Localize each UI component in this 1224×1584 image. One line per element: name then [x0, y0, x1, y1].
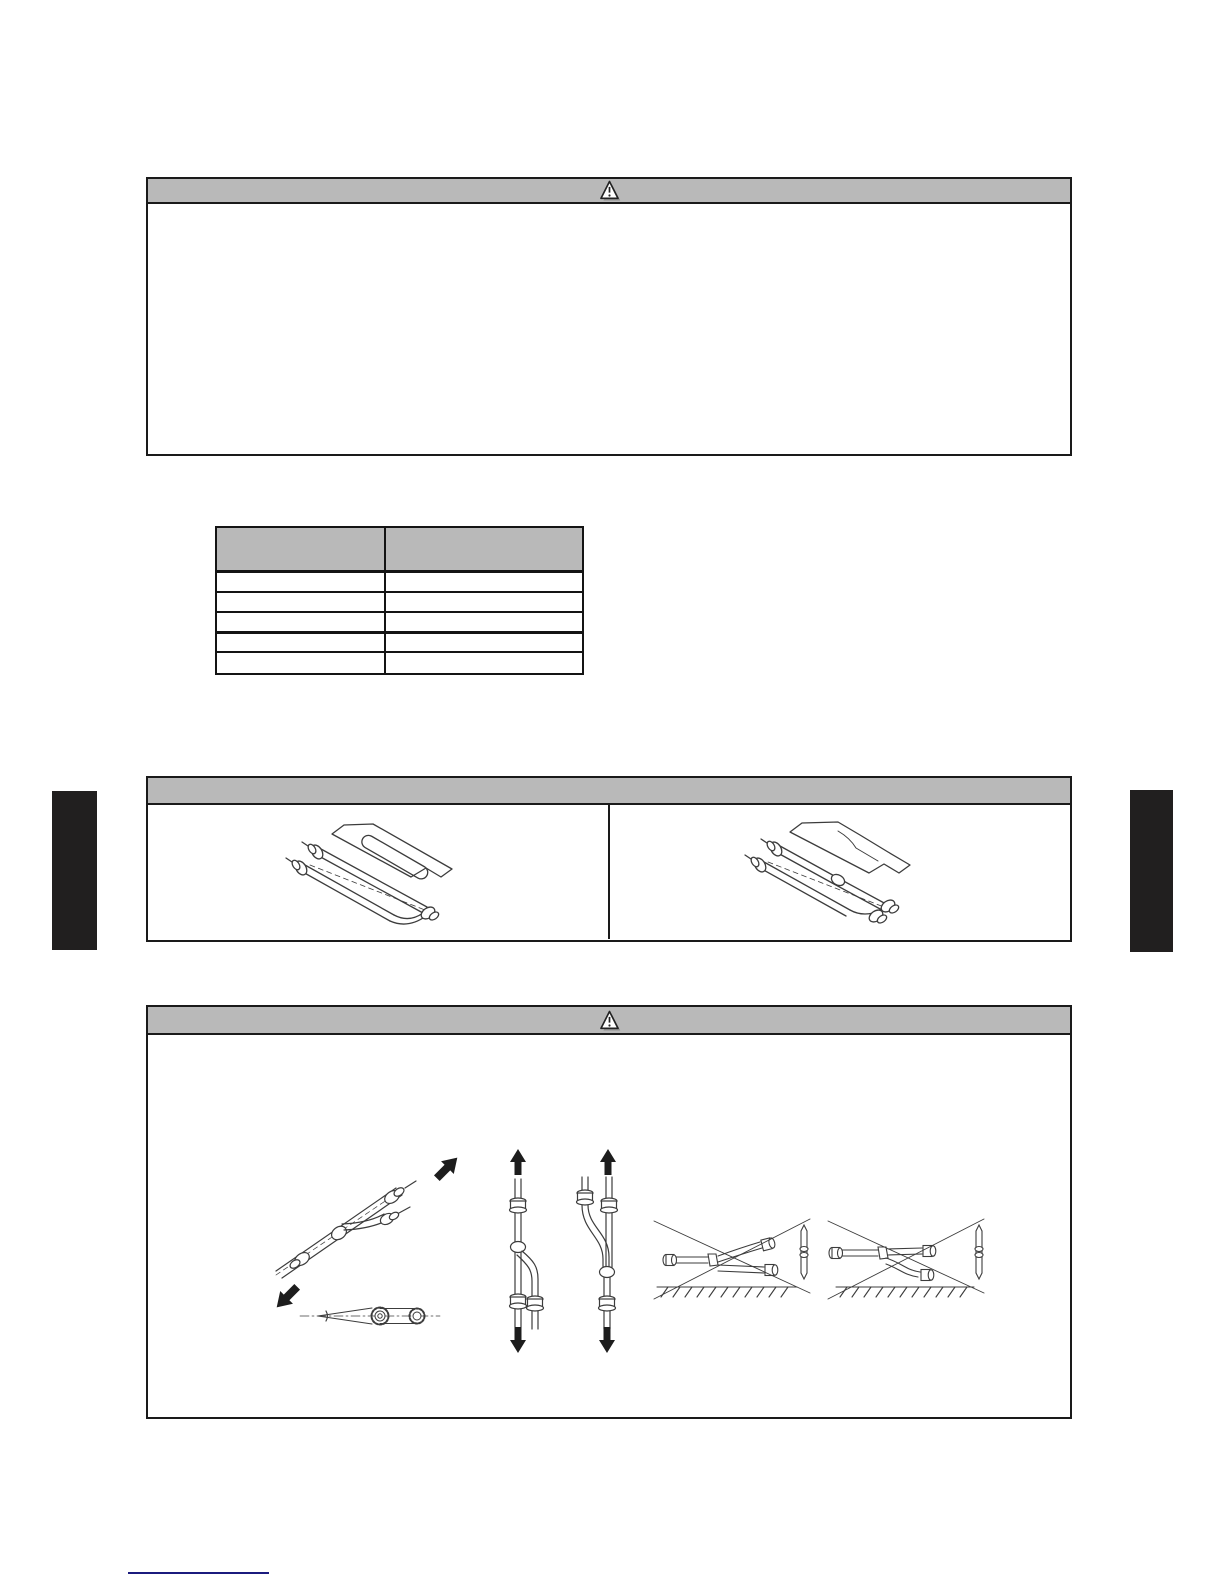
ground-hatching — [836, 1287, 974, 1297]
flare-nut-icon — [510, 1294, 527, 1309]
table-cell — [217, 613, 386, 631]
branch-pipe-cell-right — [610, 805, 1070, 939]
table-row — [217, 573, 582, 593]
arrow-up-icon — [600, 1149, 616, 1175]
vertical-reference-pipe-icon — [975, 1225, 983, 1279]
horizontal-installation-prohibited-figure-2 — [824, 1213, 989, 1308]
warning-box-header — [148, 179, 1070, 204]
table-row — [217, 613, 582, 633]
angle-tolerance-end-view — [300, 1308, 440, 1325]
caution-box-body — [148, 1035, 1070, 1417]
table-cell — [386, 573, 582, 591]
table-cell — [217, 653, 386, 673]
table-cell — [217, 573, 386, 591]
flare-nut-icon — [663, 1255, 677, 1266]
footer-link-underline — [128, 1572, 269, 1574]
flare-nut-icon — [765, 1265, 778, 1276]
flare-nut-icon — [302, 842, 325, 861]
manual-page — [0, 0, 1224, 1584]
flare-nut-icon — [577, 1190, 594, 1205]
flare-nut-icon — [829, 1248, 843, 1259]
warning-box — [146, 177, 1072, 456]
ground-hatching — [657, 1287, 797, 1297]
y-branch-pipe-kit-variant-icon — [738, 816, 943, 928]
spec-table — [215, 526, 584, 675]
table-cell — [217, 593, 386, 611]
flare-nut-icon — [286, 858, 309, 877]
flare-nut-icon — [599, 1296, 616, 1311]
y-branch-pipe-kit-icon — [276, 816, 481, 928]
flare-nut-icon — [761, 1237, 776, 1251]
arrow-down-left-icon — [270, 1280, 303, 1313]
left-page-thumb-tab — [52, 791, 97, 950]
table-cell — [386, 613, 582, 631]
flare-nut-icon — [382, 1181, 416, 1206]
branch-pipe-panel — [146, 776, 1072, 942]
table-cell — [386, 634, 582, 651]
table-cell — [386, 593, 582, 611]
table-cell — [217, 634, 386, 651]
flare-nut-icon — [921, 1270, 934, 1281]
caution-box — [146, 1005, 1072, 1419]
flare-nut-icon — [510, 1198, 527, 1213]
warning-box-body — [148, 204, 1070, 454]
spec-table-header-cell — [217, 528, 386, 570]
flare-nut-icon — [601, 1198, 618, 1213]
table-row — [217, 633, 582, 653]
spec-table-header-row — [217, 528, 582, 573]
vertical-reference-pipe-icon — [800, 1225, 808, 1279]
flare-nut-icon — [745, 855, 768, 874]
arrow-down-icon — [510, 1327, 526, 1353]
arrow-up-right-icon — [430, 1151, 463, 1184]
flare-nut-icon — [761, 839, 784, 858]
table-row — [217, 593, 582, 613]
table-cell — [386, 653, 582, 673]
warning-triangle-icon — [596, 179, 623, 202]
branch-pipe-cell-left — [148, 805, 610, 939]
caution-box-header — [148, 1007, 1070, 1035]
right-page-thumb-tab — [1130, 790, 1173, 952]
spec-table-header-cell — [386, 528, 582, 570]
vertical-installation-branch-down-figure — [482, 1147, 552, 1355]
warning-triangle-icon — [596, 1009, 623, 1032]
flare-nut-icon — [378, 1207, 410, 1227]
diagonal-installation-figure — [240, 1133, 475, 1333]
arrow-down-icon — [599, 1327, 615, 1353]
horizontal-installation-prohibited-figure-1 — [652, 1213, 817, 1308]
branch-pipe-panel-header — [148, 778, 1070, 805]
arrow-up-icon — [510, 1149, 526, 1175]
flare-nut-icon — [527, 1296, 544, 1311]
table-row — [217, 653, 582, 673]
vertical-installation-branch-up-figure — [562, 1147, 647, 1355]
